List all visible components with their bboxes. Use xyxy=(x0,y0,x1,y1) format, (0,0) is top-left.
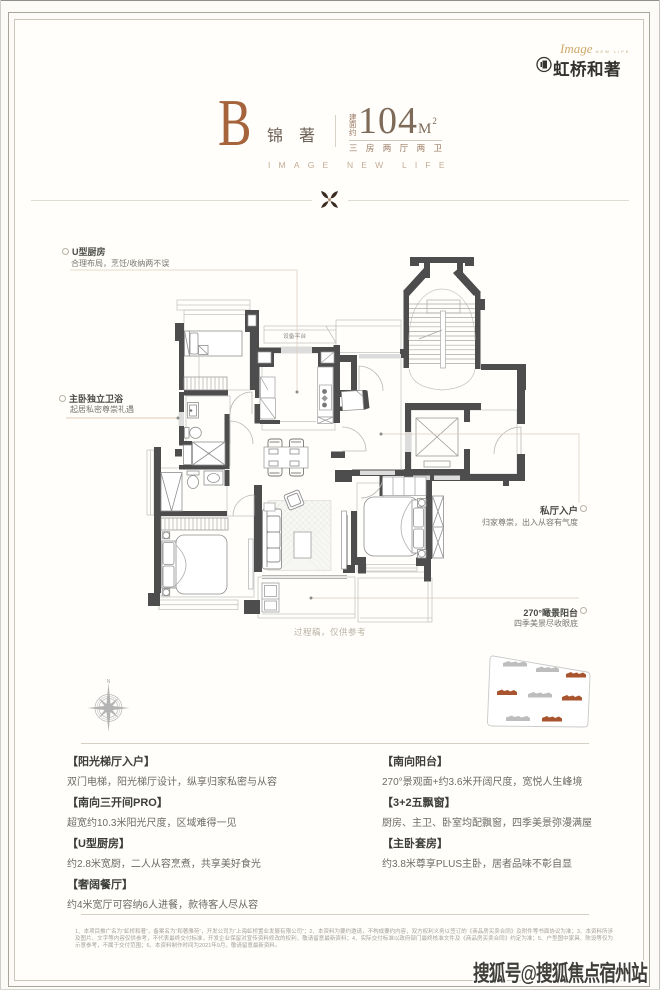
svg-text:N: N xyxy=(107,679,111,685)
svg-text:设备平台: 设备平台 xyxy=(283,332,306,340)
